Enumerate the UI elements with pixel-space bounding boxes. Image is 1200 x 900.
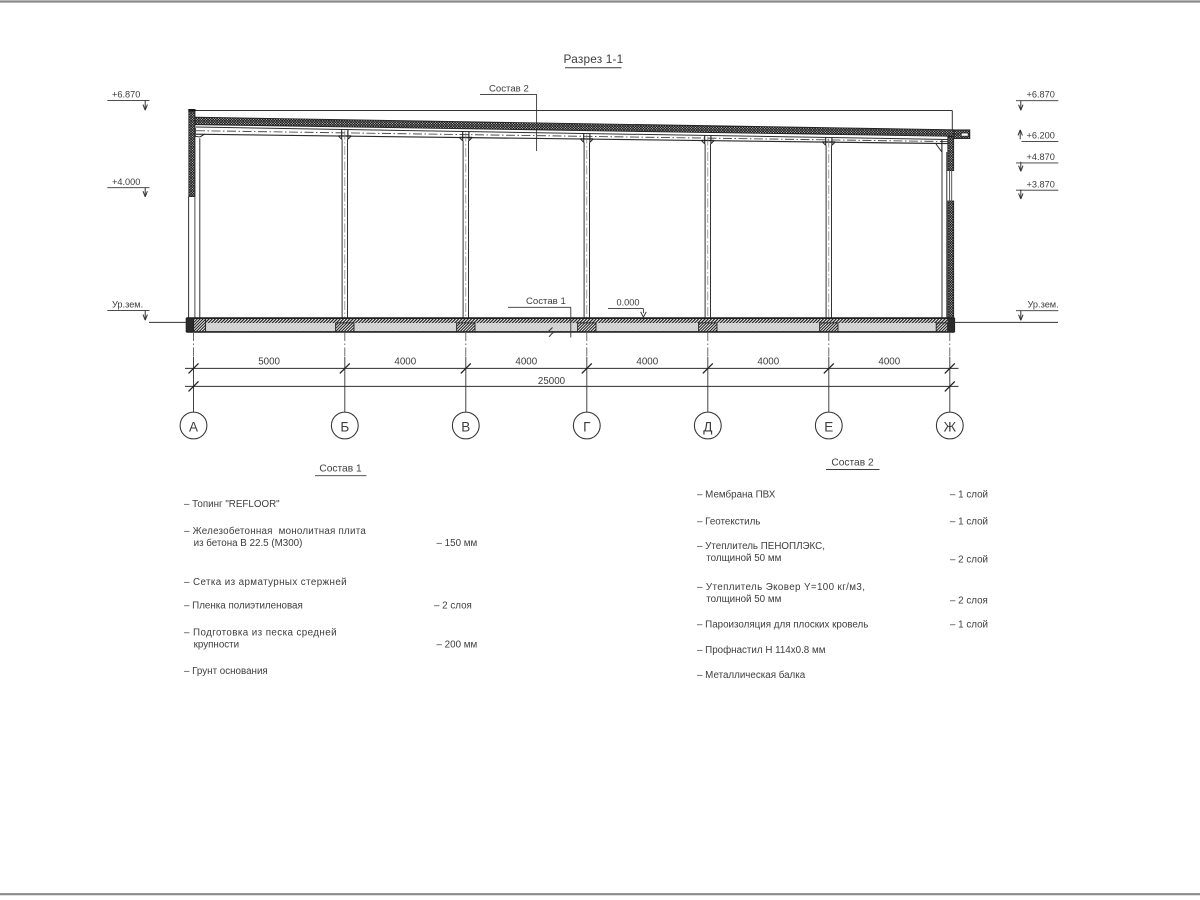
svg-text:толщиной 50 мм: толщиной 50 мм: [706, 553, 781, 564]
svg-text:В: В: [461, 419, 470, 434]
svg-text:– Металлическая балка: – Металлическая балка: [697, 670, 806, 681]
svg-text:из бетона В 22.5 (М300): из бетона В 22.5 (М300): [194, 538, 303, 549]
svg-text:– 150 мм: – 150 мм: [437, 538, 478, 549]
svg-text:– 1 слой: – 1 слой: [950, 620, 988, 631]
svg-text:Состав 2: Состав 2: [831, 457, 874, 468]
svg-text:+6.870: +6.870: [112, 90, 140, 100]
svg-text:крупности: крупности: [194, 640, 240, 651]
svg-text:Состав 1: Состав 1: [319, 464, 362, 475]
svg-text:– Грунт основания: – Грунт основания: [184, 666, 268, 677]
svg-text:– 1 слой: – 1 слой: [950, 517, 988, 528]
svg-text:– 2 слой: – 2 слой: [950, 555, 988, 566]
svg-text:Ур.зем.: Ур.зем.: [1028, 300, 1059, 310]
svg-text:– 2 слоя: – 2 слоя: [434, 601, 472, 612]
svg-text:Ж: Ж: [944, 419, 957, 434]
svg-text:– 200 мм: – 200 мм: [437, 640, 478, 651]
svg-text:4000: 4000: [515, 357, 537, 368]
svg-text:– Пленка полиэтиленовая: – Пленка полиэтиленовая: [184, 601, 303, 612]
svg-text:4000: 4000: [757, 357, 779, 368]
svg-text:– Мембрана ПВХ: – Мембрана ПВХ: [697, 490, 776, 501]
svg-text:– Геотекстиль: – Геотекстиль: [697, 517, 760, 528]
svg-text:– Утеплитель ПЕНОПЛЭКС,: – Утеплитель ПЕНОПЛЭКС,: [697, 541, 825, 552]
svg-text:25000: 25000: [538, 376, 566, 387]
svg-text:4000: 4000: [394, 357, 416, 368]
svg-text:+4.000: +4.000: [112, 177, 140, 187]
svg-text:Е: Е: [824, 419, 833, 434]
svg-text:Б: Б: [340, 419, 349, 434]
svg-text:– Топинг "REFLOOR": – Топинг "REFLOOR": [184, 499, 280, 510]
svg-text:0.000: 0.000: [617, 298, 640, 308]
svg-text:– 1 слой: – 1 слой: [950, 490, 988, 501]
svg-text:– Утеплитель Эковер Y=100 кг/м: – Утеплитель Эковер Y=100 кг/м3,: [697, 582, 865, 593]
svg-text:толщиной 50 мм: толщиной 50 мм: [706, 594, 781, 605]
svg-text:+6.200: +6.200: [1027, 131, 1055, 141]
svg-text:Г: Г: [583, 419, 591, 434]
svg-text:– Сетка из арматурных стержней: – Сетка из арматурных стержней: [184, 577, 347, 588]
svg-text:+4.870: +4.870: [1027, 152, 1055, 162]
svg-text:Ур.зем.: Ур.зем.: [112, 300, 143, 310]
svg-text:А: А: [189, 419, 198, 434]
svg-text:– Профнастил Н 114х0.8 мм: – Профнастил Н 114х0.8 мм: [697, 645, 826, 656]
svg-text:+6.870: +6.870: [1027, 90, 1055, 100]
svg-text:Д: Д: [703, 419, 712, 434]
svg-text:– Пароизоляция для плоских кро: – Пароизоляция для плоских кровель: [697, 620, 868, 631]
svg-text:Разрез 1-1: Разрез 1-1: [564, 52, 624, 66]
svg-text:5000: 5000: [258, 357, 280, 368]
svg-text:Состав 1: Состав 1: [526, 296, 566, 307]
svg-text:Состав 2: Состав 2: [489, 84, 529, 95]
svg-text:– Подготовка из песка средней: – Подготовка из песка средней: [184, 628, 337, 639]
svg-text:4000: 4000: [878, 357, 900, 368]
svg-text:– 2 слоя: – 2 слоя: [950, 596, 988, 607]
svg-text:– Железобетонная монолитная п: – Железобетонная монолитная плита: [184, 526, 366, 537]
svg-text:+3.870: +3.870: [1027, 179, 1055, 189]
svg-text:4000: 4000: [636, 357, 658, 368]
